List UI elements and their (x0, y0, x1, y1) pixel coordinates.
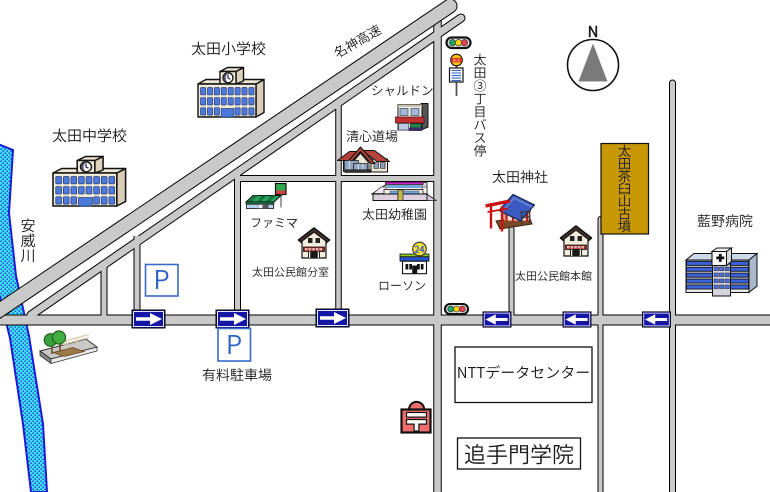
svg-text:NTTデータセンター: NTTデータセンター (457, 362, 591, 383)
svg-text:24: 24 (415, 243, 425, 256)
svg-text:太田公民館分室: 太田公民館分室 (252, 264, 329, 280)
svg-text:ローソン: ローソン (378, 277, 426, 294)
svg-text:太田小学校: 太田小学校 (191, 38, 266, 59)
svg-text:ファミマ: ファミマ (250, 214, 298, 231)
svg-text:墳: 墳 (618, 215, 632, 235)
svg-text:川: 川 (20, 245, 35, 266)
svg-text:N: N (588, 21, 599, 42)
svg-text:停: 停 (473, 141, 486, 160)
svg-text:シャルドン: シャルドン (371, 80, 434, 99)
svg-text:BUS: BUS (453, 59, 461, 64)
svg-text:清心道場: 清心道場 (346, 126, 398, 145)
svg-text:藍野病院: 藍野病院 (697, 211, 753, 231)
svg-text:追手門学院: 追手門学院 (464, 438, 574, 470)
svg-text:有料駐車場: 有料駐車場 (202, 365, 272, 385)
svg-text:P: P (226, 325, 242, 362)
svg-text:太田神社: 太田神社 (492, 167, 548, 187)
svg-text:太田公民館本館: 太田公民館本館 (515, 268, 592, 284)
svg-text:太田中学校: 太田中学校 (52, 125, 127, 146)
svg-text:太田幼稚園: 太田幼稚園 (362, 204, 427, 223)
svg-text:P: P (153, 260, 169, 297)
